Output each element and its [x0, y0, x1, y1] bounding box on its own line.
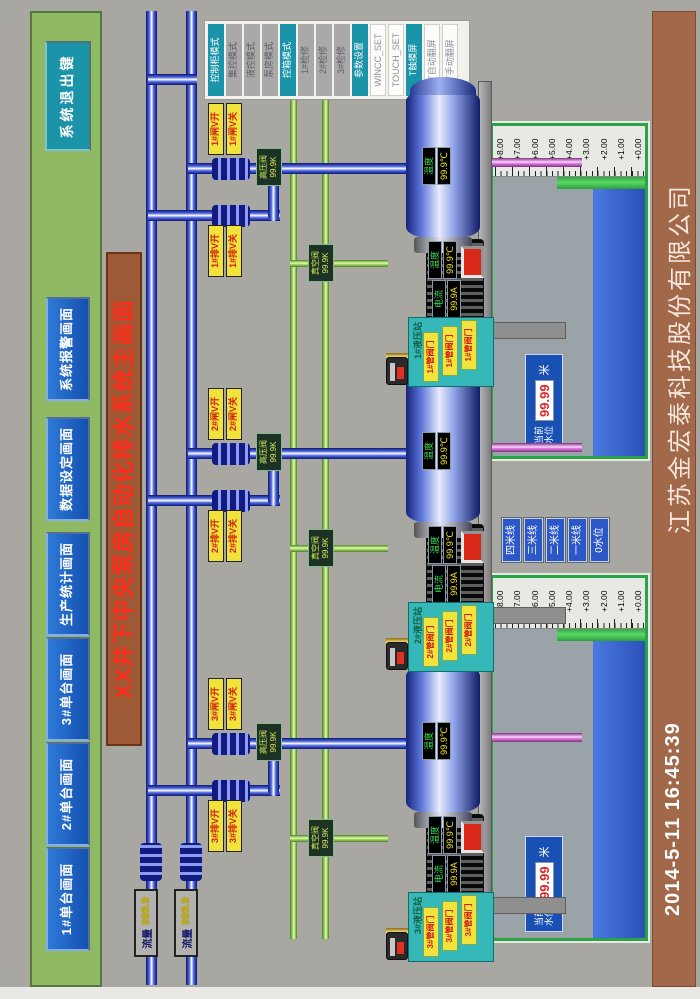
vacuum-pressure-label: 真空阀	[311, 245, 321, 281]
motor-temp-value: 99.9℃	[443, 526, 457, 564]
motor-current-label: 电流	[432, 280, 446, 318]
discharge-pressure-label: 高压阀	[259, 434, 269, 470]
motor-temp-value: 99.9℃	[443, 241, 457, 279]
hydraulic-station-panel: 1#液压站 1#管阀门1#管阀门1#管阀门	[408, 317, 494, 387]
motor-temp-readout: 温度 99.9℃	[428, 816, 457, 854]
motor-stop-button[interactable]	[461, 531, 484, 563]
drain-valve-indicators: 3#排V开 3#排V关	[208, 800, 242, 852]
vacuum-pressure-value: 99.9K	[321, 245, 331, 281]
vacuum-pressure-value: 99.9K	[321, 530, 331, 566]
discharge-pressure-value: 99.9K	[269, 149, 279, 185]
vacuum-drop-pipe	[290, 835, 388, 842]
motor-temp-label: 温度	[428, 241, 442, 279]
discharge-pressure-box: 高压阀 99.9K	[256, 148, 282, 186]
pump-motor: 电流 99.9A 温度 99.9℃	[426, 239, 484, 321]
gate-valve-close-indicator[interactable]: 2#闸V关	[226, 388, 242, 440]
pipe-valve-button-1[interactable]: 2#管阀门	[423, 617, 439, 667]
nav-bar: 系统退出键 1#单台画面2#单台画面3#单台画面生产统计画面数据设定画面系统报警…	[30, 11, 102, 987]
pump-temp-label: 温度	[422, 147, 436, 185]
pump-temp-readout: 温度 99.9℃	[422, 722, 451, 760]
pump-body: 温度 99.9℃	[406, 89, 480, 239]
motor-current-readout: 电流 99.9A	[432, 280, 461, 318]
nav-button-2[interactable]: 2#单台画面	[46, 742, 90, 846]
pump-temp-readout: 温度 99.9℃	[422, 432, 451, 470]
motor-temp-value: 99.9℃	[443, 816, 457, 854]
discharge-pressure-box: 高压阀 99.9K	[256, 723, 282, 761]
pump-station-2#: 2#排V开 2#排V关 2#闸V开 2#闸V关 高压阀 99.9K 真空阀 99…	[140, 344, 660, 664]
vacuum-pressure-label: 真空阀	[311, 820, 321, 856]
pipe-valve-button-2[interactable]: 1#管阀门	[442, 326, 458, 376]
hydraulic-station-title: 2#液压站	[409, 603, 424, 671]
drain-valve	[212, 205, 250, 227]
motor-temp-label: 温度	[428, 526, 442, 564]
hydraulic-pump-icon	[386, 357, 408, 385]
drain-valve	[212, 780, 250, 802]
gate-valve-close-indicator[interactable]: 1#闸V关	[226, 103, 242, 155]
motor-stop-button[interactable]	[461, 246, 484, 278]
pipe-valve-button-2[interactable]: 2#管阀门	[442, 611, 458, 661]
drain-valve-close-indicator[interactable]: 1#排V关	[226, 225, 242, 277]
discharge-pressure-value: 99.9K	[269, 724, 279, 760]
gate-valve-open-indicator[interactable]: 1#闸V开	[208, 103, 224, 155]
pump-motor: 电流 99.9A 温度 99.9℃	[426, 814, 484, 896]
discharge-pressure-label: 高压阀	[259, 724, 269, 760]
page-title: XX井下中央泵房自动化排水系统主画面	[106, 252, 142, 746]
discharge-pressure-box: 高压阀 99.9K	[256, 433, 282, 471]
vacuum-pressure-value: 99.9K	[321, 820, 331, 856]
hydraulic-station-title: 1#液压站	[409, 318, 424, 386]
vacuum-pressure-box: 真空阀 99.9K	[308, 819, 334, 857]
pipe-valve-button-1[interactable]: 3#管阀门	[423, 907, 439, 957]
hydraulic-station-panel: 3#液压站 3#管阀门3#管阀门3#管阀门	[408, 892, 494, 962]
vacuum-pressure-box: 真空阀 99.9K	[308, 244, 334, 282]
pump-body: 温度 99.9℃	[406, 374, 480, 524]
system-exit-button[interactable]: 系统退出键	[45, 41, 91, 151]
hydraulic-station-panel: 2#液压站 2#管阀门2#管阀门2#管阀门	[408, 602, 494, 672]
vacuum-pressure-box: 真空阀 99.9K	[308, 529, 334, 567]
motor-current-value: 99.9A	[447, 855, 461, 893]
pipe-valve-button-3[interactable]: 1#管阀门	[461, 320, 477, 370]
discharge-pressure-value: 99.9K	[269, 434, 279, 470]
nav-button-3[interactable]: 3#单台画面	[46, 637, 90, 741]
motor-temp-readout: 温度 99.9℃	[428, 241, 457, 279]
hydraulic-station-title: 3#液压站	[409, 893, 424, 961]
vacuum-pressure-label: 真空阀	[311, 530, 321, 566]
photo-edge	[0, 987, 700, 999]
datetime-display: 2014-5-11 16:45:39	[662, 722, 685, 916]
motor-temp-readout: 温度 99.9℃	[428, 526, 457, 564]
nav-button-5[interactable]: 数据设定画面	[46, 417, 90, 521]
pump-temp-label: 温度	[422, 432, 436, 470]
pipe-valve-button-2[interactable]: 3#管阀门	[442, 901, 458, 951]
rotated-hmi-photo: 流量 999.9 流量 999.9 系统退出键 1#单台画面2#单台画面3#单台…	[0, 0, 700, 999]
nav-button-4[interactable]: 生产统计画面	[46, 532, 90, 636]
nav-button-6[interactable]: 系统报警画面	[46, 297, 90, 401]
gate-valve-open-indicator[interactable]: 2#闸V开	[208, 388, 224, 440]
gate-valve-indicators: 3#闸V开 3#闸V关	[208, 678, 242, 730]
gate-valve-open-indicator[interactable]: 3#闸V开	[208, 678, 224, 730]
pump-station-1#: 1#排V开 1#排V关 1#闸V开 1#闸V关 高压阀 99.9K 真空阀 99…	[140, 59, 660, 379]
nav-button-1[interactable]: 1#单台画面	[46, 847, 90, 951]
pump-body: 温度 99.9℃	[406, 664, 480, 814]
drain-valve-indicators: 1#排V开 1#排V关	[208, 225, 242, 277]
pump-motor: 电流 99.9A 温度 99.9℃	[426, 524, 484, 606]
drain-valve	[212, 490, 250, 512]
drain-valve-close-indicator[interactable]: 3#排V关	[226, 800, 242, 852]
gate-valve-close-indicator[interactable]: 3#闸V关	[226, 678, 242, 730]
motor-current-label: 电流	[432, 855, 446, 893]
motor-current-readout: 电流 99.9A	[432, 855, 461, 893]
gate-valve	[212, 733, 250, 755]
motor-stop-button[interactable]	[461, 821, 484, 853]
drain-valve-open-indicator[interactable]: 3#排V开	[208, 800, 224, 852]
gate-valve-indicators: 1#闸V开 1#闸V关	[208, 103, 242, 155]
discharge-pressure-label: 高压阀	[259, 149, 269, 185]
motor-current-value: 99.9A	[447, 280, 461, 318]
pipe-valve-button-3[interactable]: 3#管阀门	[461, 895, 477, 945]
gate-valve-indicators: 2#闸V开 2#闸V关	[208, 388, 242, 440]
pipe-valve-button-3[interactable]: 2#管阀门	[461, 605, 477, 655]
pump-temp-value: 99.9℃	[437, 722, 451, 760]
gate-valve	[212, 158, 250, 180]
pump-temp-value: 99.9℃	[437, 432, 451, 470]
motor-current-value: 99.9A	[447, 565, 461, 603]
motor-current-label: 电流	[432, 565, 446, 603]
gate-valve	[212, 443, 250, 465]
vacuum-drop-pipe	[290, 260, 388, 267]
vacuum-drop-pipe	[290, 545, 388, 552]
bottom-bar: 2014-5-11 16:45:39 江苏金宏泰科技股份有限公司	[652, 11, 696, 987]
pump-temp-value: 99.9℃	[437, 147, 451, 185]
hydraulic-pump-icon	[386, 642, 408, 670]
hydraulic-pump-icon	[386, 932, 408, 960]
pump-station-3#: 3#排V开 3#排V关 3#闸V开 3#闸V关 高压阀 99.9K 真空阀 99…	[140, 634, 660, 954]
drain-valve-open-indicator[interactable]: 1#排V开	[208, 225, 224, 277]
drain-valve-close-indicator[interactable]: 2#排V关	[226, 510, 242, 562]
pipe-valve-button-1[interactable]: 1#管阀门	[423, 332, 439, 382]
drain-valve-open-indicator[interactable]: 2#排V开	[208, 510, 224, 562]
motor-temp-label: 温度	[428, 816, 442, 854]
drain-valve-indicators: 2#排V开 2#排V关	[208, 510, 242, 562]
pump-temp-readout: 温度 99.9℃	[422, 147, 451, 185]
pump-temp-label: 温度	[422, 722, 436, 760]
hmi-screen: 流量 999.9 流量 999.9 系统退出键 1#单台画面2#单台画面3#单台…	[0, 0, 700, 999]
motor-current-readout: 电流 99.9A	[432, 565, 461, 603]
company-name: 江苏金宏泰科技股份有限公司	[660, 183, 695, 534]
